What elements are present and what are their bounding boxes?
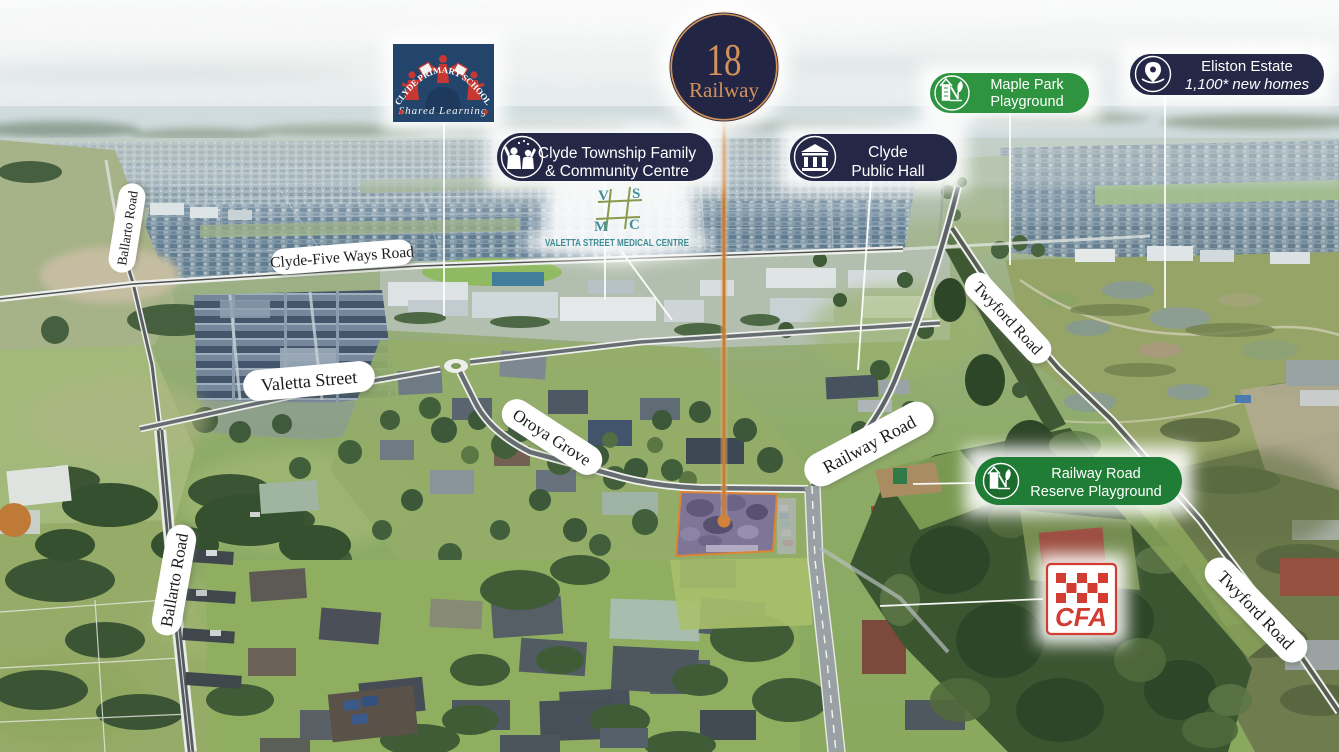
svg-text:V: V <box>598 188 609 204</box>
svg-text:Maple Park: Maple Park <box>990 77 1064 93</box>
svg-text:1,100* new homes: 1,100* new homes <box>1185 76 1310 93</box>
svg-text:M: M <box>594 219 608 235</box>
svg-text:Clyde: Clyde <box>868 144 908 161</box>
svg-text:S: S <box>632 186 640 202</box>
svg-text:VALETTA STREET MEDICAL CENTRE: VALETTA STREET MEDICAL CENTRE <box>545 237 689 249</box>
svg-text:Railway: Railway <box>689 78 759 102</box>
svg-text:Clyde Township Family: Clyde Township Family <box>538 145 696 162</box>
svg-text:Reserve Playground: Reserve Playground <box>1030 484 1161 500</box>
svg-text:Public Hall: Public Hall <box>851 163 924 180</box>
svg-text:Eliston Estate: Eliston Estate <box>1201 58 1293 75</box>
svg-text:Railway Road: Railway Road <box>1051 466 1140 482</box>
svg-text:CFA: CFA <box>1055 602 1107 632</box>
svg-text:Playground: Playground <box>990 94 1063 110</box>
svg-text:C: C <box>629 217 640 233</box>
svg-text:Shared Learning: Shared Learning <box>399 105 488 117</box>
svg-text:& Community Centre: & Community Centre <box>545 163 689 180</box>
